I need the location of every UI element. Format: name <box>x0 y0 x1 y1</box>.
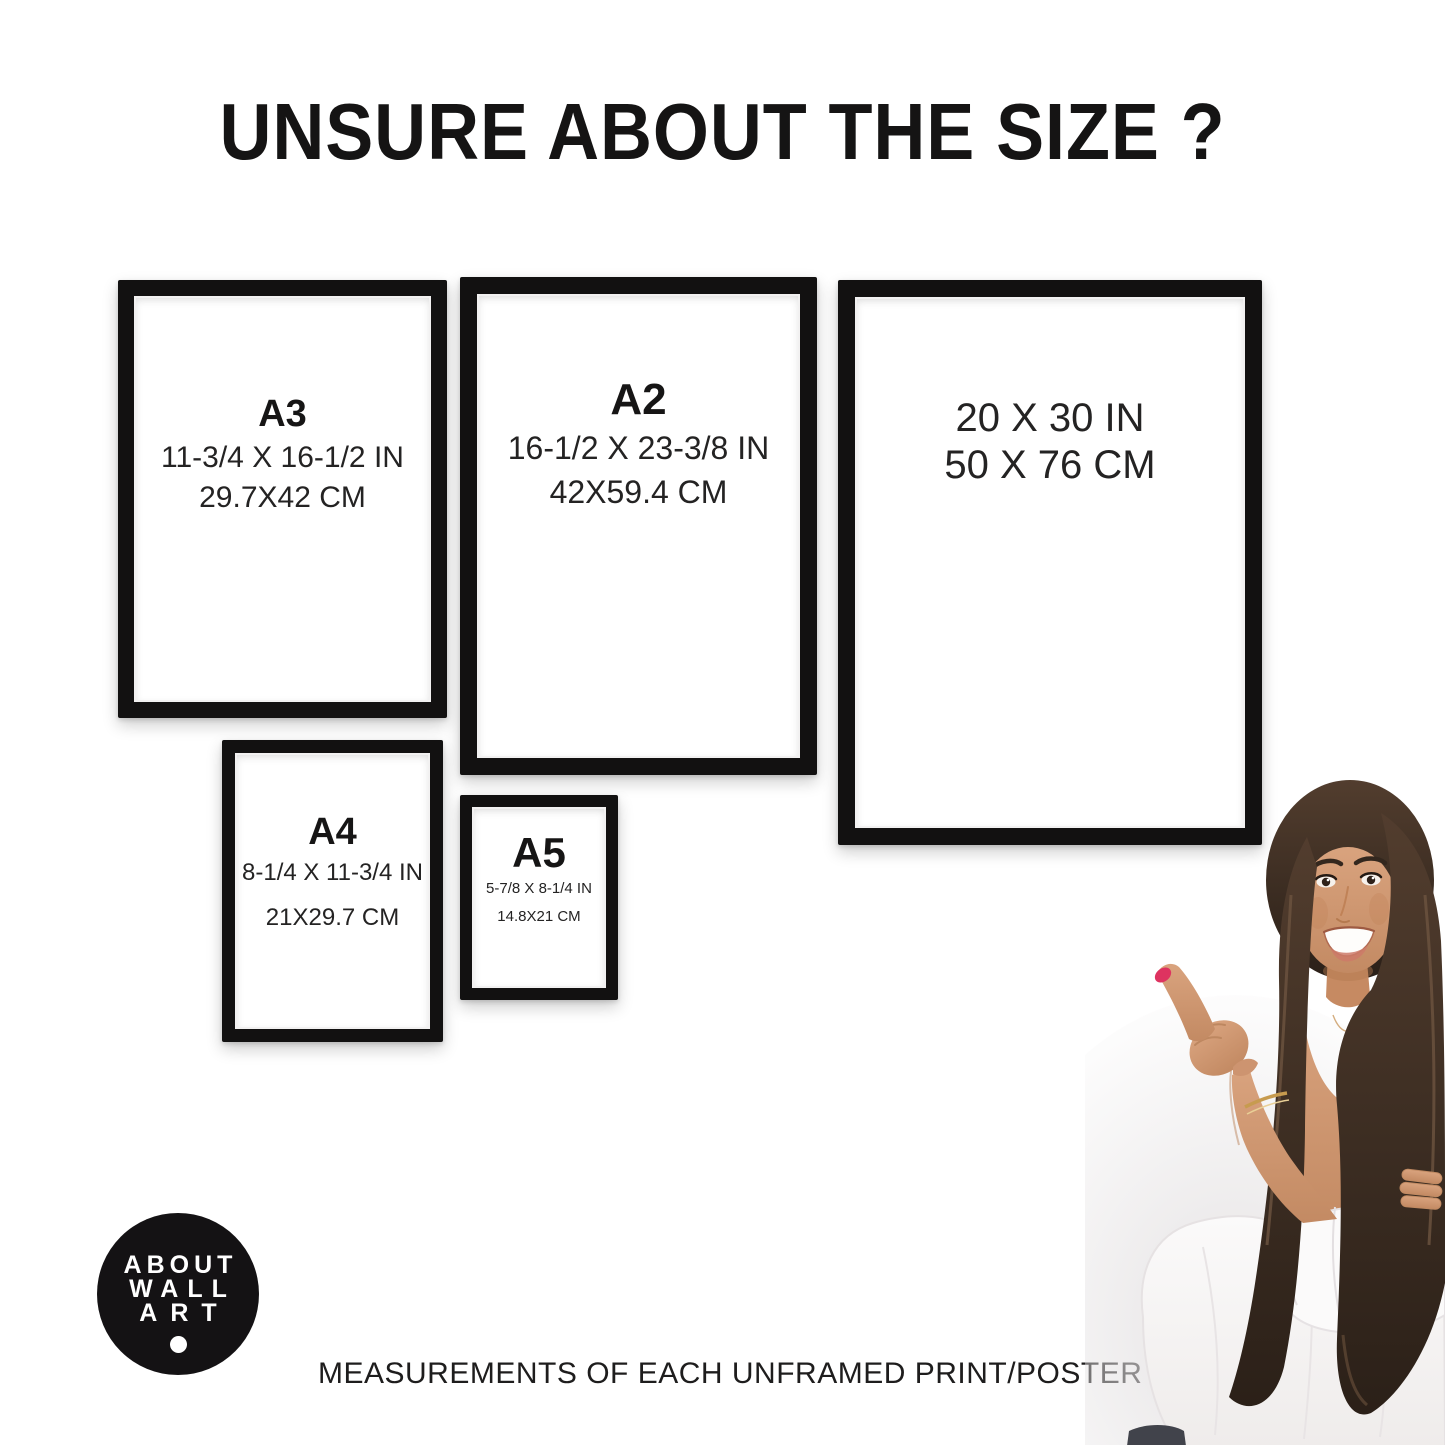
model-photo <box>1085 775 1445 1445</box>
frame-a2-print: A2 16-1/2 X 23-3/8 IN 42X59.4 CM <box>477 294 800 758</box>
frame-a2: A2 16-1/2 X 23-3/8 IN 42X59.4 CM <box>460 277 817 775</box>
size-inches: 5-7/8 X 8-1/4 IN <box>486 878 592 899</box>
size-cm: 14.8X21 CM <box>497 906 580 927</box>
caption: MEASUREMENTS OF EACH UNFRAMED PRINT/POST… <box>318 1357 1142 1391</box>
size-inches: 20 X 30 IN <box>955 395 1144 442</box>
frame-a5-print: A5 5-7/8 X 8-1/4 IN 14.8X21 CM <box>472 807 606 988</box>
size-label: A3 <box>258 392 307 438</box>
eye-glint-left <box>1327 879 1330 882</box>
brand-logo-line: WALL <box>120 1277 236 1301</box>
size-cm: 42X59.4 CM <box>550 470 728 514</box>
frame-a5: A5 5-7/8 X 8-1/4 IN 14.8X21 CM <box>460 795 618 1000</box>
eye-glint-right <box>1372 877 1375 880</box>
frame-a4-print: A4 8-1/4 X 11-3/4 IN 21X29.7 CM <box>235 753 430 1029</box>
iris-right <box>1367 876 1375 884</box>
size-guide-image: UNSURE ABOUT THE SIZE ? A3 11-3/4 X 16-1… <box>0 0 1445 1445</box>
cheek-right <box>1369 893 1389 925</box>
size-inches: 16-1/2 X 23-3/8 IN <box>508 426 769 470</box>
brand-logo-line: ABOUT <box>119 1253 238 1277</box>
frame-20x30: 20 X 30 IN 50 X 76 CM <box>838 280 1262 845</box>
brand-logo-line: ART <box>126 1301 229 1325</box>
frame-a3: A3 11-3/4 X 16-1/2 IN 29.7X42 CM <box>118 280 447 718</box>
size-cm: 21X29.7 CM <box>266 902 399 933</box>
frame-20x30-print: 20 X 30 IN 50 X 76 CM <box>855 297 1245 828</box>
frame-a4: A4 8-1/4 X 11-3/4 IN 21X29.7 CM <box>222 740 443 1042</box>
size-cm: 29.7X42 CM <box>199 478 366 519</box>
page-title: UNSURE ABOUT THE SIZE ? <box>72 86 1373 178</box>
size-label: A5 <box>512 828 566 878</box>
model-photo-graphic <box>1085 775 1445 1445</box>
iris-left <box>1322 878 1330 886</box>
size-cm: 50 X 76 CM <box>944 442 1155 489</box>
size-inches: 8-1/4 X 11-3/4 IN <box>242 857 423 888</box>
left-hand-fingers <box>1399 1169 1442 1210</box>
size-label: A2 <box>610 375 666 426</box>
size-label: A4 <box>308 809 357 857</box>
logo-dot-icon <box>170 1336 187 1353</box>
brand-logo: ABOUT WALL ART <box>97 1213 259 1375</box>
frame-a3-print: A3 11-3/4 X 16-1/2 IN 29.7X42 CM <box>134 296 431 702</box>
size-inches: 11-3/4 X 16-1/2 IN <box>161 438 404 479</box>
